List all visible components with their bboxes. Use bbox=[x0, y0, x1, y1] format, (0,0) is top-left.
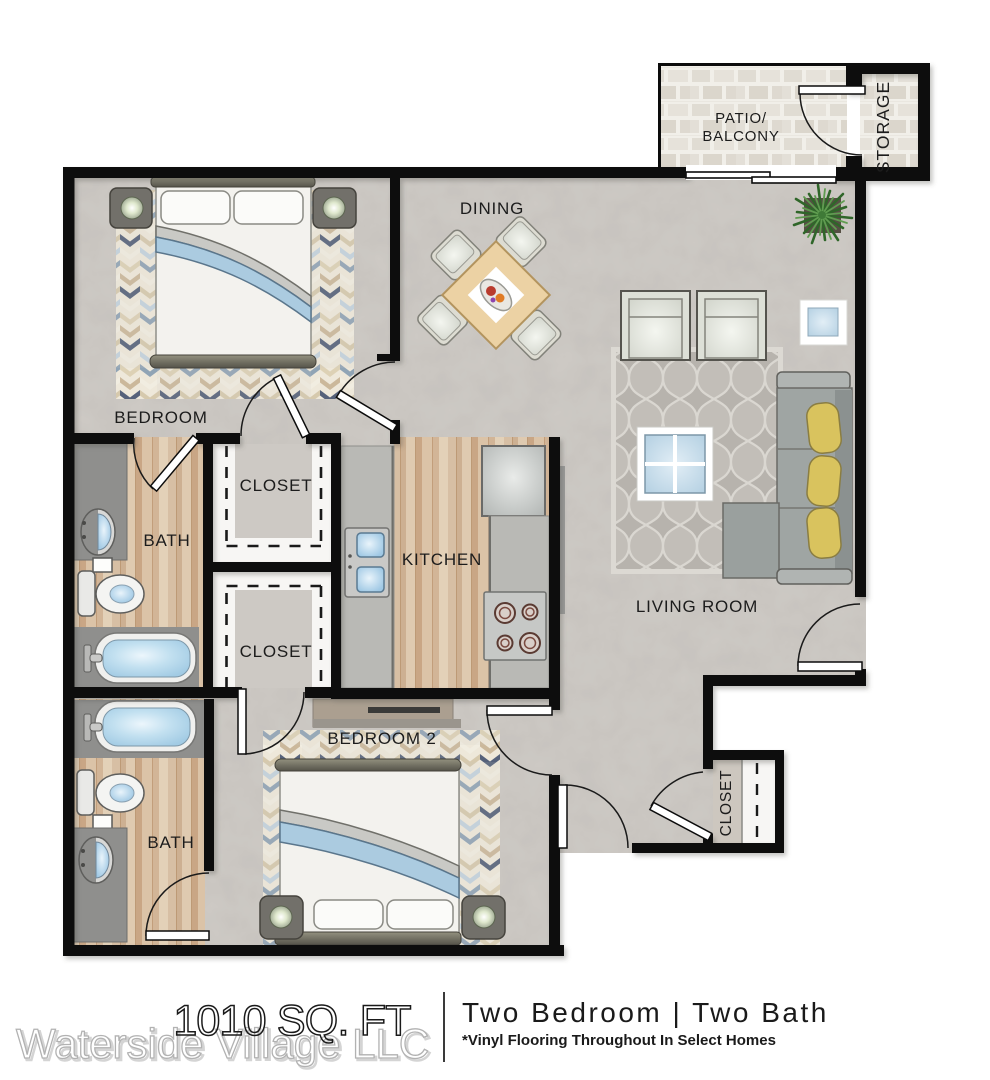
svg-text:BALCONY: BALCONY bbox=[702, 128, 779, 145]
svg-text:PATIO/: PATIO/ bbox=[715, 110, 767, 127]
svg-text:BEDROOM 2: BEDROOM 2 bbox=[327, 729, 436, 748]
svg-text:CLOSET: CLOSET bbox=[718, 770, 735, 837]
svg-text:BATH: BATH bbox=[147, 833, 194, 852]
svg-text:LIVING ROOM: LIVING ROOM bbox=[636, 597, 758, 616]
svg-text:1010 SQ. FT: 1010 SQ. FT bbox=[173, 997, 411, 1045]
svg-text:*Vinyl Flooring Throughout In: *Vinyl Flooring Throughout In Select Hom… bbox=[462, 1032, 776, 1049]
svg-text:BEDROOM: BEDROOM bbox=[114, 408, 207, 427]
svg-text:KITCHEN: KITCHEN bbox=[402, 550, 482, 569]
svg-text:BATH: BATH bbox=[143, 531, 190, 550]
svg-text:CLOSET: CLOSET bbox=[240, 476, 313, 495]
svg-text:DINING: DINING bbox=[460, 199, 524, 218]
svg-text:Two Bedroom | Two Bath: Two Bedroom | Two Bath bbox=[462, 997, 829, 1028]
svg-text:STORAGE: STORAGE bbox=[873, 81, 893, 173]
svg-text:CLOSET: CLOSET bbox=[240, 642, 313, 661]
